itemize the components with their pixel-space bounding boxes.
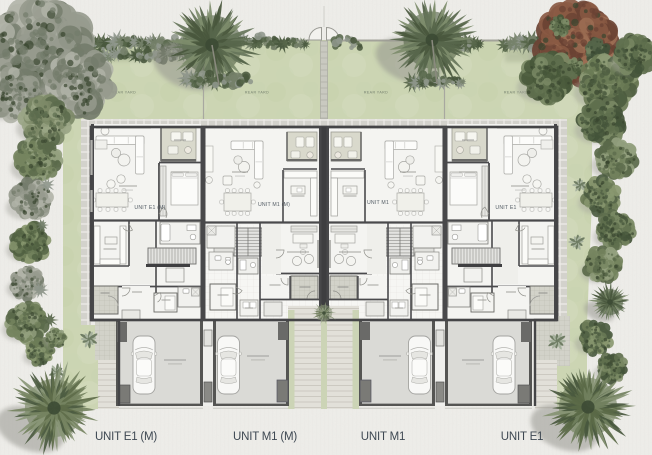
svg-text:UNIT E1 (M): UNIT E1 (M) bbox=[134, 205, 165, 211]
svg-text:REAR YARD: REAR YARD bbox=[245, 91, 269, 95]
svg-text:UNIT M1 (M): UNIT M1 (M) bbox=[258, 202, 290, 208]
svg-text:UNIT E1: UNIT E1 bbox=[495, 205, 516, 211]
svg-text:UNIT M1: UNIT M1 bbox=[361, 431, 405, 443]
svg-text:UNIT M1 (M): UNIT M1 (M) bbox=[233, 431, 297, 443]
svg-text:UNIT E1 (M): UNIT E1 (M) bbox=[95, 431, 157, 443]
svg-text:UNIT M1: UNIT M1 bbox=[367, 200, 389, 206]
svg-text:REAR YARD: REAR YARD bbox=[364, 91, 388, 95]
svg-text:UNIT E1: UNIT E1 bbox=[501, 431, 543, 443]
